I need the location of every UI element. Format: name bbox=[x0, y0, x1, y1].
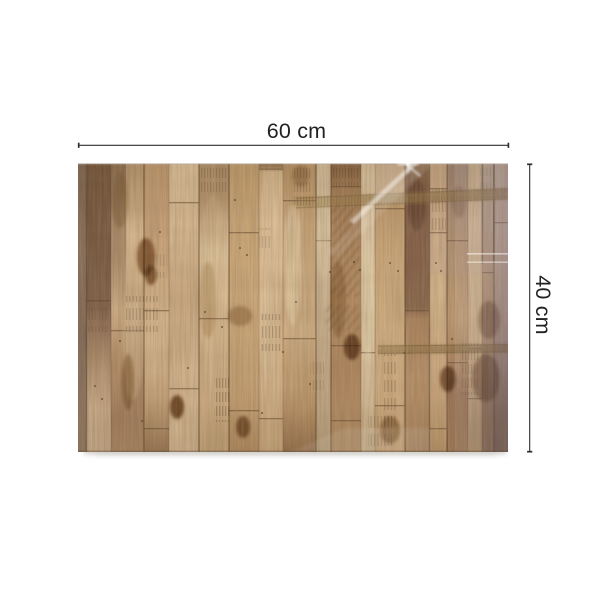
svg-text:40 cm: 40 cm bbox=[531, 275, 555, 335]
svg-text:60 cm: 60 cm bbox=[267, 119, 327, 143]
